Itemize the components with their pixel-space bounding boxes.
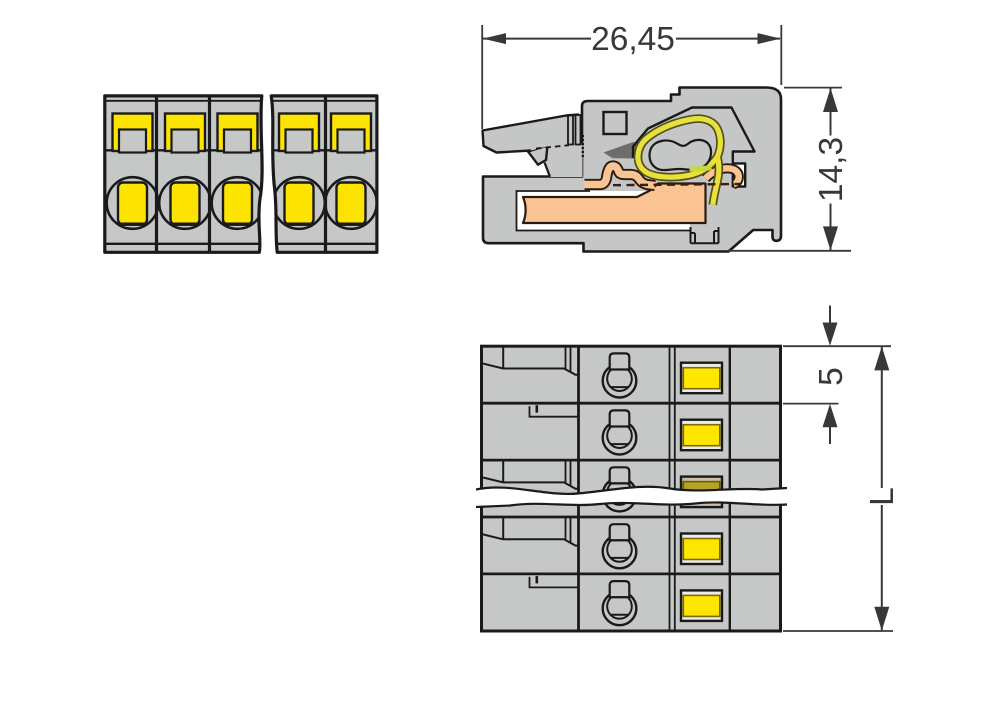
svg-text:5: 5 xyxy=(813,367,850,386)
svg-text:14,3: 14,3 xyxy=(813,137,850,202)
svg-text:26,45: 26,45 xyxy=(591,21,675,58)
svg-text:L: L xyxy=(864,487,901,506)
